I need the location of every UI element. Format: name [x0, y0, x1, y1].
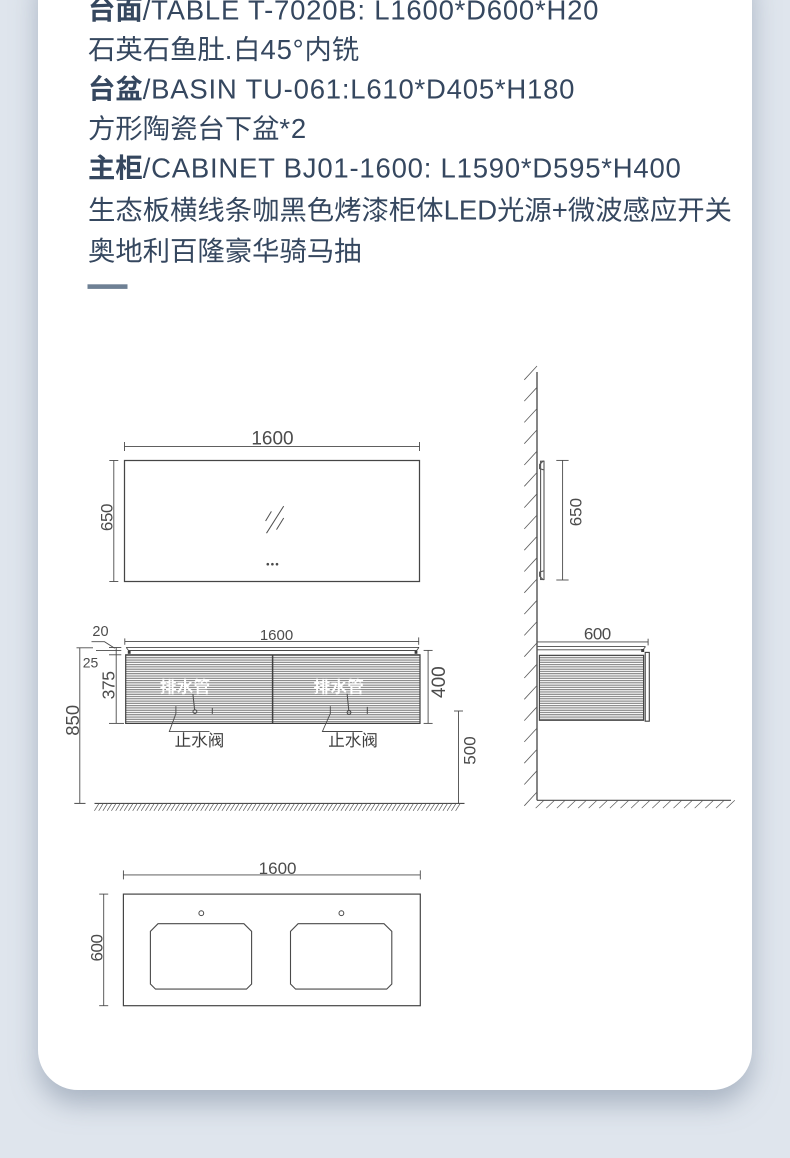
- svg-text:375: 375: [99, 671, 119, 699]
- svg-text:/BASIN TU-061:L610*D405*H180: /BASIN TU-061:L610*D405*H180: [143, 74, 576, 105]
- svg-text:25: 25: [83, 655, 99, 671]
- svg-text:650: 650: [566, 498, 585, 526]
- svg-text:+: +: [552, 195, 568, 226]
- svg-text:*2: *2: [279, 113, 307, 144]
- svg-text:1600: 1600: [260, 627, 293, 644]
- svg-text:LED: LED: [444, 195, 498, 226]
- svg-text:1600: 1600: [259, 859, 297, 878]
- svg-text:20: 20: [92, 624, 108, 640]
- svg-text:850: 850: [62, 705, 83, 736]
- svg-text:.: .: [225, 34, 233, 65]
- svg-text:/TABLE T-7020B: L1600*D600*H20: /TABLE T-7020B: L1600*D600*H20: [143, 0, 600, 25]
- svg-text:1600: 1600: [251, 429, 293, 450]
- svg-text:600: 600: [87, 935, 106, 962]
- svg-text:/CABINET BJ01-1600: L1590*D595: /CABINET BJ01-1600: L1590*D595*H400: [143, 153, 682, 184]
- svg-text:650: 650: [98, 504, 117, 531]
- svg-text:600: 600: [584, 624, 611, 643]
- svg-text:500: 500: [460, 736, 479, 764]
- svg-text:45°: 45°: [261, 34, 305, 65]
- svg-text:400: 400: [429, 666, 450, 698]
